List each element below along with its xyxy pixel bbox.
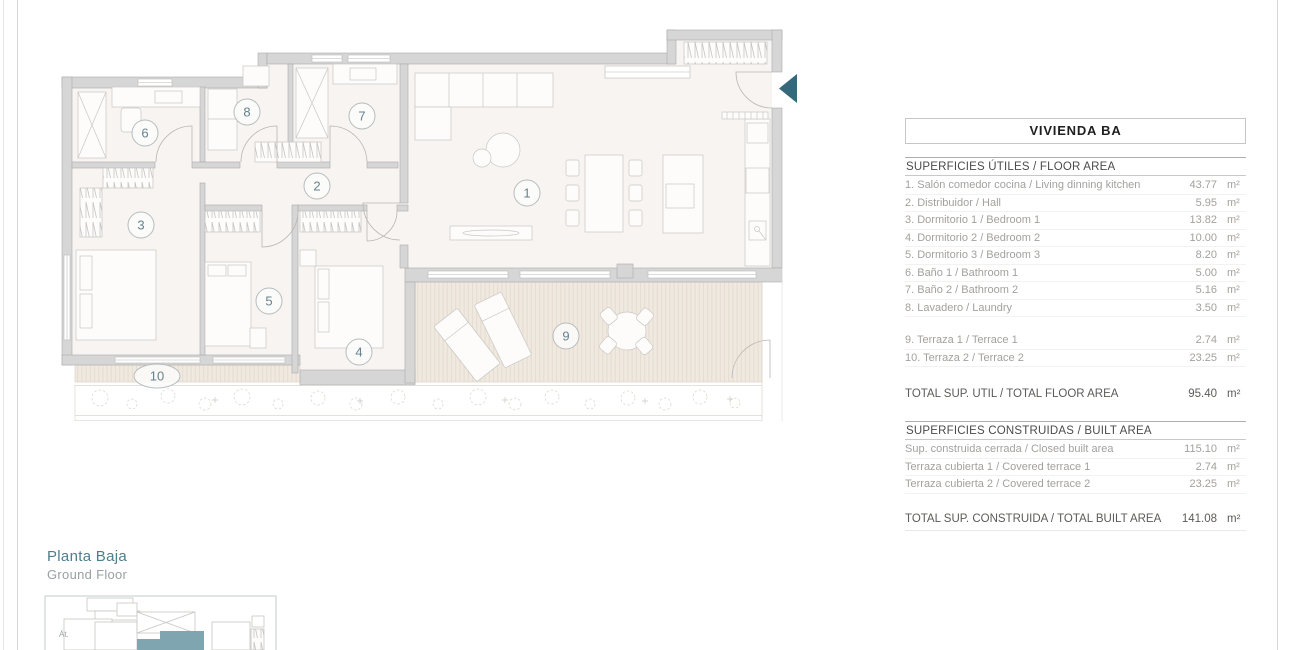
floor-subtitle: Ground Floor: [47, 567, 127, 582]
room-number-label: 4: [355, 345, 362, 360]
row-value: 5.95: [1165, 197, 1217, 209]
row-value: 8.20: [1165, 249, 1217, 261]
row-label: Terraza cubierta 2 / Covered terrace 2: [905, 478, 1165, 490]
room-number-label: 6: [141, 126, 148, 141]
row-value: 23.25: [1165, 478, 1217, 490]
row-unit: m²: [1217, 284, 1246, 296]
row-label: 4. Dormitorio 2 / Bedroom 2: [905, 232, 1165, 244]
sofa: [415, 73, 553, 107]
row-unit: m²: [1217, 214, 1246, 226]
row-group: 1. Salón comedor cocina / Living dinning…: [905, 177, 1246, 317]
row-value: 23.25: [1165, 352, 1217, 364]
area-row: 9. Terraza 1 / Terrace 12.74m²: [905, 332, 1246, 350]
row-unit: m²: [1217, 249, 1246, 261]
area-row: 3. Dormitorio 1 / Bedroom 113.82m²: [905, 212, 1246, 230]
row-value: 43.77: [1165, 179, 1217, 191]
row-unit: m²: [1217, 461, 1246, 473]
area-row: 2. Distribuidor / Hall5.95m²: [905, 195, 1246, 213]
unit-title: VIVIENDA BA: [905, 118, 1246, 144]
area-sections: SUPERFICIES ÚTILES / FLOOR AREA1. Salón …: [905, 157, 1246, 531]
total-row: TOTAL SUP. CONSTRUIDA / TOTAL BUILT AREA…: [905, 508, 1246, 531]
area-row: 7. Baño 2 / Bathroom 25.16m²: [905, 282, 1246, 300]
row-value: 5.00: [1165, 267, 1217, 279]
row-value: 115.10: [1165, 443, 1217, 455]
room-number-label: 2: [313, 179, 320, 194]
area-row: Terraza cubierta 1 / Covered terrace 12.…: [905, 459, 1246, 477]
row-group: 9. Terraza 1 / Terrace 12.74m²10. Terraz…: [905, 332, 1246, 367]
section-header: SUPERFICIES CONSTRUIDAS / BUILT AREA: [905, 421, 1246, 440]
row-value: 95.40: [1165, 388, 1217, 400]
room-number-label: 1: [523, 186, 530, 201]
row-unit: m²: [1217, 388, 1246, 400]
row-label: 2. Distribuidor / Hall: [905, 197, 1165, 209]
area-section: SUPERFICIES CONSTRUIDAS / BUILT AREASup.…: [905, 421, 1246, 531]
row-label: 6. Baño 1 / Bathroom 1: [905, 267, 1165, 279]
room-number-label: 9: [562, 329, 569, 344]
row-value: 2.74: [1165, 334, 1217, 346]
keyplan-label: Át.: [59, 630, 69, 639]
row-unit: m²: [1217, 179, 1246, 191]
row-unit: m²: [1217, 334, 1246, 346]
area-row: Sup. construida cerrada / Closed built a…: [905, 441, 1246, 459]
area-row: 1. Salón comedor cocina / Living dinning…: [905, 177, 1246, 195]
row-label: 7. Baño 2 / Bathroom 2: [905, 284, 1165, 296]
total-row: TOTAL SUP. ÚTIL / TOTAL FLOOR AREA95.40m…: [905, 383, 1246, 404]
row-label: 1. Salón comedor cocina / Living dinning…: [905, 179, 1165, 191]
area-row: 5. Dormitorio 3 / Bedroom 38.20m²: [905, 247, 1246, 265]
row-label: 5. Dormitorio 3 / Bedroom 3: [905, 249, 1165, 261]
row-label: 3. Dormitorio 1 / Bedroom 1: [905, 214, 1165, 226]
row-unit: m²: [1217, 352, 1246, 364]
row-label: 8. Lavadero / Laundry: [905, 302, 1165, 314]
floor-title: Planta Baja: [47, 548, 127, 565]
room-number-label: 5: [265, 294, 272, 309]
row-unit: m²: [1217, 267, 1246, 279]
floor-label: Planta Baja Ground Floor: [47, 548, 127, 582]
row-value: 10.00: [1165, 232, 1217, 244]
sofa-corner: [415, 107, 451, 140]
side-table: [473, 149, 491, 167]
area-row: 8. Lavadero / Laundry3.50m²: [905, 300, 1246, 318]
areas-table: VIVIENDA BA SUPERFICIES ÚTILES / FLOOR A…: [905, 118, 1246, 531]
section-header: SUPERFICIES ÚTILES / FLOOR AREA: [905, 157, 1246, 176]
key-plan: Át.: [45, 596, 276, 650]
room-number-label: 10: [150, 369, 164, 384]
row-group: Sup. construida cerrada / Closed built a…: [905, 441, 1246, 494]
room-number-label: 7: [358, 109, 365, 124]
tv-bench: [450, 226, 532, 240]
row-value: 2.74: [1165, 461, 1217, 473]
area-row: Terraza cubierta 2 / Covered terrace 223…: [905, 476, 1246, 494]
row-label: 9. Terraza 1 / Terrace 1: [905, 334, 1165, 346]
room-number-label: 8: [243, 105, 250, 120]
laundry-unit: [208, 89, 237, 150]
area-row: 10. Terraza 2 / Terrace 223.25m²: [905, 350, 1246, 368]
row-unit: m²: [1217, 232, 1246, 244]
row-unit: m²: [1217, 443, 1246, 455]
row-unit: m²: [1217, 513, 1246, 525]
area-row: 6. Baño 1 / Bathroom 15.00m²: [905, 265, 1246, 283]
row-label: TOTAL SUP. ÚTIL / TOTAL FLOOR AREA: [905, 388, 1165, 400]
area-section: SUPERFICIES ÚTILES / FLOOR AREA1. Salón …: [905, 157, 1246, 404]
row-value: 141.08: [1165, 513, 1217, 525]
coffee-table: [486, 133, 520, 167]
dining-table: [585, 155, 623, 232]
row-label: Sup. construida cerrada / Closed built a…: [905, 443, 1165, 455]
entrance-arrow-icon: [779, 74, 797, 103]
plan-sheet: { "plan": { "accent_color": "#35687a", "…: [0, 0, 1291, 650]
row-value: 3.50: [1165, 302, 1217, 314]
area-row: 4. Dormitorio 2 / Bedroom 210.00m²: [905, 230, 1246, 248]
row-unit: m²: [1217, 478, 1246, 490]
row-value: 5.16: [1165, 284, 1217, 296]
row-label: 10. Terraza 2 / Terrace 2: [905, 352, 1165, 364]
row-value: 13.82: [1165, 214, 1217, 226]
row-unit: m²: [1217, 302, 1246, 314]
row-label: TOTAL SUP. CONSTRUIDA / TOTAL BUILT AREA: [905, 513, 1165, 525]
terrace-1-deck: [75, 365, 300, 382]
row-unit: m²: [1217, 197, 1246, 209]
row-label: Terraza cubierta 1 / Covered terrace 1: [905, 461, 1165, 473]
room-number-label: 3: [137, 218, 144, 233]
